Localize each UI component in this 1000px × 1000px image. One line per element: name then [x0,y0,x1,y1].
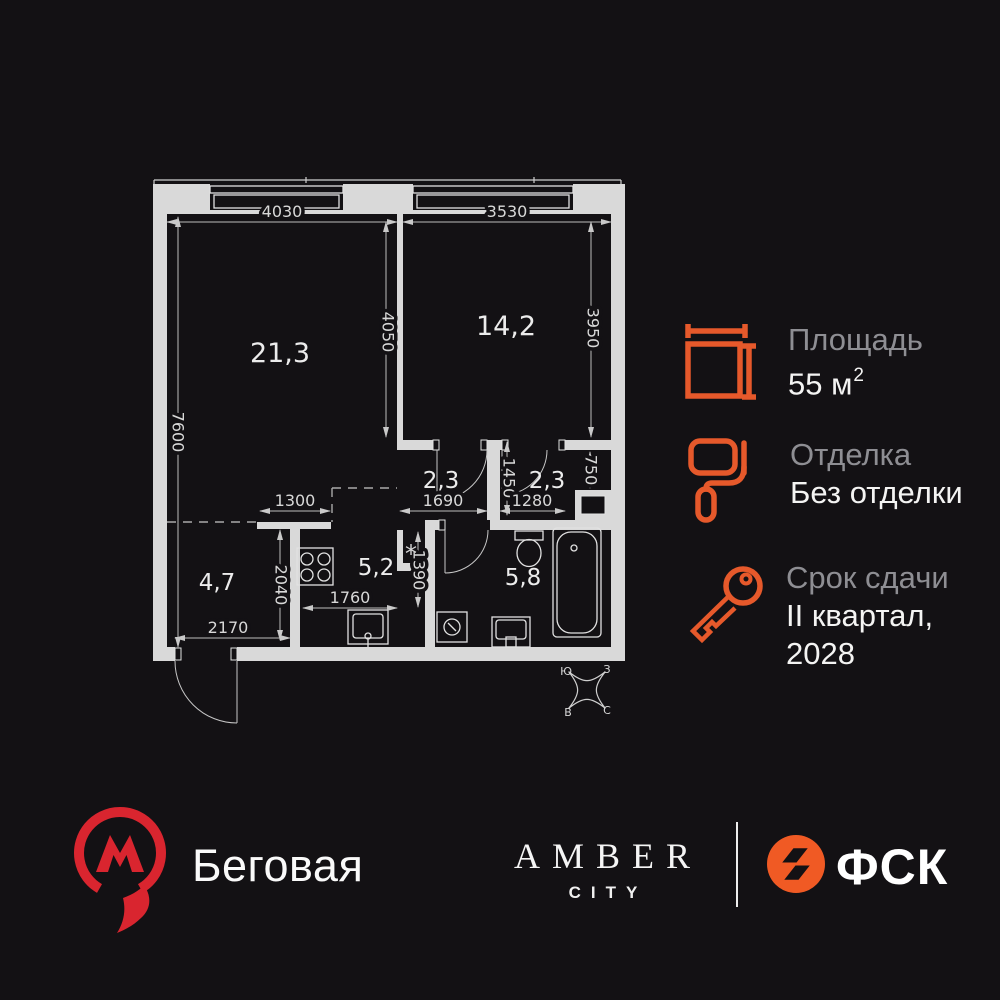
area-label: Площадь [788,322,923,358]
dim-kitchen-width: 1760 [330,588,371,607]
dim-wardrobe-width: 2170 [208,618,249,637]
flat-card: 4030 3530 7600 4050 3950 750 1450 1690 1… [0,0,1000,1000]
room-label-bathroom: 5,8 [505,565,542,591]
bathtub-icon [553,528,601,637]
deadline-label: Срок сдачи [786,560,949,596]
floor-plan: 4030 3530 7600 4050 3950 750 1450 1690 1… [150,170,630,730]
room-label-bedroom: 14,2 [476,311,536,342]
paint-roller-icon [687,437,771,530]
compass-east: В [564,706,572,719]
ruler-square-icon [685,322,769,405]
stove-icon [297,548,333,585]
info-area: Площадь 55 м2 [685,322,923,405]
metro-logo-icon [68,805,180,942]
brand-name: AMBER [498,838,718,874]
deadline-value-line1: II квартал, [786,597,949,634]
washer-marker: * [405,540,417,568]
dim-mid-height: 4050 [379,312,398,353]
kitchen-sink-icon [348,610,388,647]
room-label-kitchen: 5,2 [358,555,395,581]
dim-left-height: 7600 [169,412,188,453]
amber-city-logo: AMBER CITY [498,838,718,903]
dim-bedroom-height: 3950 [584,308,603,349]
fsk-logo-icon [767,835,825,898]
info-finish: Отделка Без отделки [687,437,963,530]
dim-bedroom-width: 3530 [487,202,528,221]
washing-machine-icon [437,612,467,642]
area-value: 55 м2 [788,359,923,402]
dim-kitchen-height: 2040 [272,565,291,606]
compass-rose: Ю З В С [550,653,624,727]
dim-living-width: 4030 [262,202,303,221]
finish-label: Отделка [790,437,963,473]
deadline-value-line2: 2028 [786,635,949,672]
toilet-icon [515,531,543,567]
area-sup: 2 [853,365,864,386]
key-icon [683,560,767,655]
finish-value: Без отделки [790,474,963,511]
compass-north: С [603,704,611,717]
compass-west: З [603,663,610,676]
compass-south: Ю [560,665,572,678]
footer-divider [736,822,738,907]
room-label-hallway-2: 2,3 [529,468,566,494]
dim-shaft-height: 750 [582,455,601,486]
brand-subname: CITY [498,883,718,903]
dim-wardrobe-top-width: 1300 [275,491,316,510]
metro-station-name: Беговая [192,843,363,888]
room-label-wardrobe: 4,7 [199,570,236,596]
room-label-living: 21,3 [250,338,310,369]
info-deadline: Срок сдачи II квартал, 2028 [683,560,949,672]
room-label-hallway: 2,3 [423,468,460,494]
bath-sink-icon [492,617,530,647]
developer-name: ФСК [836,842,948,892]
